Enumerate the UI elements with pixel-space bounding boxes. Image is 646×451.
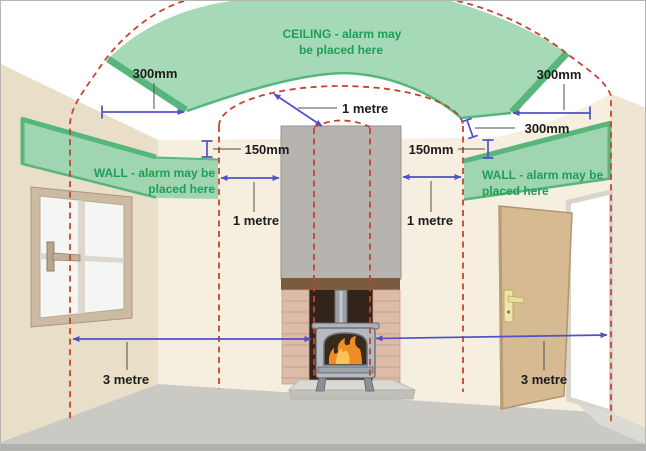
label-right-floor-3m: 3 metre xyxy=(521,372,567,387)
ceiling-zone-label-line1: CEILING - alarm may xyxy=(283,27,402,41)
hearth xyxy=(289,380,415,399)
ceiling-zone-label-line2: be placed here xyxy=(299,43,383,57)
right-wall xyxy=(611,94,646,430)
door-handle-plate xyxy=(504,290,513,322)
door-edge xyxy=(500,207,502,408)
chimney-breast xyxy=(281,126,401,279)
wall-zone-right-label-line2: placed here xyxy=(482,184,549,198)
fireplace xyxy=(281,126,415,399)
door-opening xyxy=(571,195,609,409)
room-scene: CEILING - alarm may be placed here WALL … xyxy=(1,1,646,451)
label-right-150mm: 150mm xyxy=(409,142,454,157)
brick-column-left xyxy=(282,290,309,384)
mantel-beam xyxy=(281,278,400,290)
label-cove-right-300mm: 300mm xyxy=(525,121,570,136)
door-keyhole xyxy=(507,310,510,313)
alarm-placement-diagram: CEILING - alarm may be placed here WALL … xyxy=(0,0,646,451)
label-left-floor-3m: 3 metre xyxy=(103,372,149,387)
label-left-150mm: 150mm xyxy=(245,142,290,157)
label-ceiling-left-300mm: 300mm xyxy=(133,66,178,81)
window xyxy=(31,187,132,327)
stove-ash-lip xyxy=(318,367,373,373)
wall-zone-left-label-line2: placed here xyxy=(148,182,215,196)
wall-zone-left-label-line1: WALL - alarm may be xyxy=(94,166,215,180)
brick-column-right xyxy=(373,290,400,384)
floor-front-edge xyxy=(1,444,646,451)
doorway xyxy=(566,189,613,413)
label-flue-radius-1m: 1 metre xyxy=(342,101,388,116)
label-left-wall-1m: 1 metre xyxy=(233,213,279,228)
label-ceiling-right-300mm: 300mm xyxy=(537,67,582,82)
label-right-wall-1m: 1 metre xyxy=(407,213,453,228)
wall-zone-right-label-line1: WALL - alarm may be xyxy=(482,168,603,182)
